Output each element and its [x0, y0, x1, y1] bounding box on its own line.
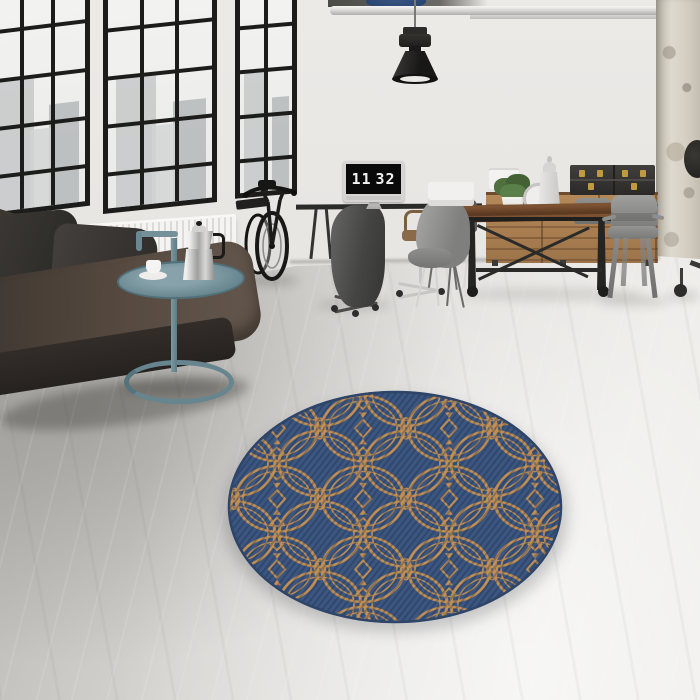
- window-muntin: [51, 0, 55, 205]
- city-building: [116, 76, 156, 208]
- city-building: [0, 79, 34, 212]
- window-muntin: [108, 17, 212, 32]
- printer: [428, 182, 474, 206]
- monitor-stand: [366, 201, 382, 209]
- shell-chair-seat: [408, 248, 452, 268]
- window-muntin: [140, 0, 144, 205]
- loft-interior-photo: 1132: [0, 0, 700, 700]
- moka-pot-body: [183, 249, 215, 280]
- moka-pot-handle: [213, 233, 225, 259]
- lantern-body: [538, 172, 560, 206]
- brass-clasp: [597, 170, 603, 177]
- coffee-cup: [146, 260, 161, 273]
- window-1-glass: [0, 0, 85, 213]
- window-muntin: [108, 65, 212, 80]
- sideboard-leg: [492, 260, 498, 266]
- side-table-handle: [136, 231, 142, 251]
- dining-table-apron: [464, 217, 622, 221]
- clock-minutes: 32: [376, 170, 396, 188]
- storage-boxes: [570, 165, 655, 195]
- clock-hours: 11: [351, 170, 371, 188]
- brass-clasp: [622, 170, 628, 177]
- window-2-glass: [108, 0, 212, 208]
- lamp-inner-light: [400, 76, 430, 82]
- lamp-cord: [414, 0, 416, 30]
- moka-pot-top: [185, 231, 213, 249]
- brass-clasp: [631, 183, 637, 190]
- jacket-on-chair: [331, 205, 385, 307]
- side-table-handle: [136, 231, 178, 237]
- window-3-glass: [240, 0, 292, 193]
- window-3: [235, 0, 297, 199]
- monitor: 1132: [343, 161, 404, 202]
- window-muntin: [175, 0, 179, 201]
- lantern-dome: [543, 162, 556, 173]
- moka-pot-lid: [192, 225, 206, 232]
- window-1: [0, 0, 90, 218]
- side-table-base: [124, 360, 234, 404]
- flip-clock-screen: 1132: [346, 164, 401, 194]
- window-muntin: [264, 0, 268, 191]
- wooden-chair-caster: [438, 288, 445, 295]
- window-muntin: [0, 20, 85, 36]
- box-divider: [570, 179, 655, 181]
- ceiling-pipe: [330, 6, 700, 15]
- metal-armchair-back: [611, 195, 657, 227]
- city-building: [30, 127, 51, 208]
- office-chair-caster: [331, 305, 338, 312]
- table-caster: [467, 286, 478, 297]
- side-table-stem: [171, 238, 177, 372]
- wooden-chair-caster: [396, 290, 403, 297]
- table-stretcher: [476, 268, 602, 272]
- table-leg: [597, 220, 606, 290]
- moka-pot-knob: [196, 221, 202, 226]
- office-chair-caster: [372, 304, 379, 311]
- desk-leg: [309, 209, 317, 259]
- brass-clasp: [640, 170, 646, 177]
- round-rug: [226, 390, 564, 627]
- city-building: [244, 72, 264, 192]
- office-chair-caster: [352, 310, 359, 317]
- city-building: [152, 124, 175, 204]
- brass-clasp: [579, 170, 585, 177]
- rolling-rack-caster: [674, 284, 687, 297]
- window-2: [103, 0, 217, 214]
- monitor-chin: [346, 196, 401, 200]
- brass-clasp: [588, 183, 594, 190]
